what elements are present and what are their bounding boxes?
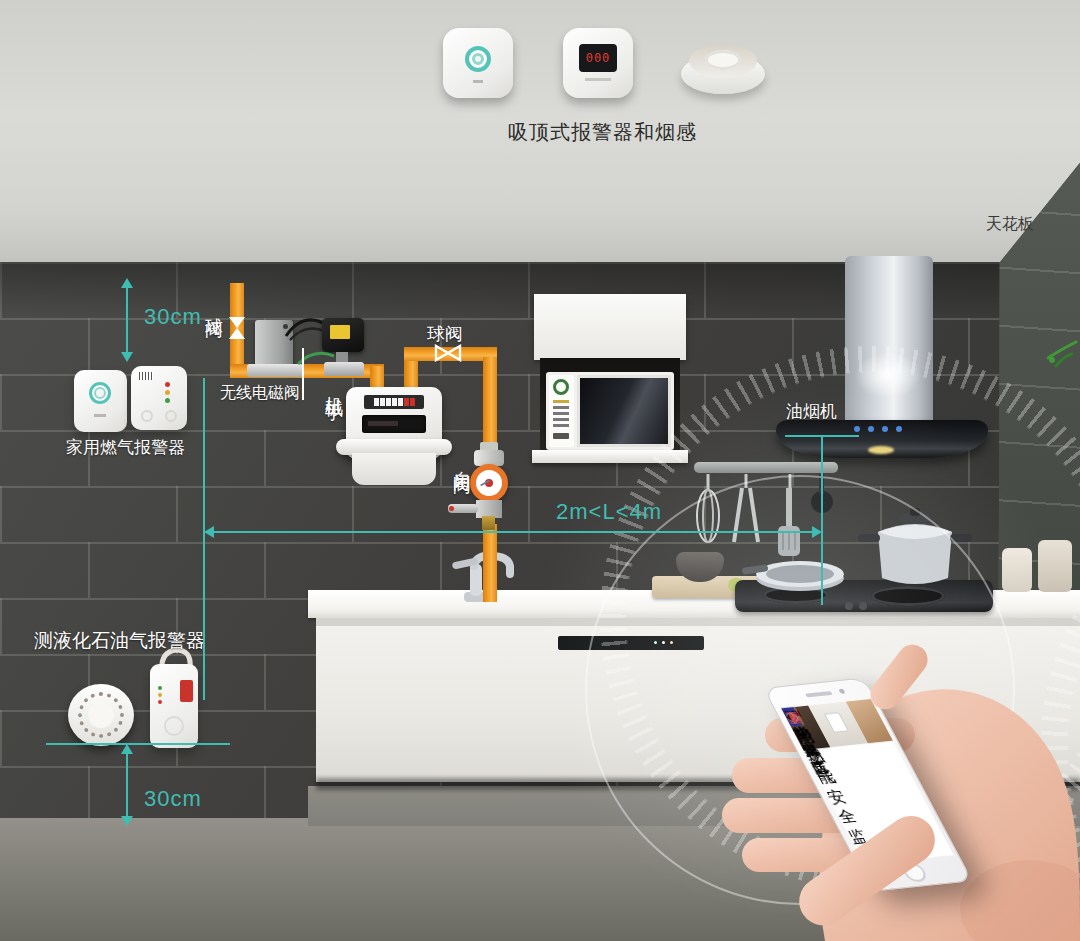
arrow-up-icon [121, 278, 133, 288]
ball-valve-symbol-riser [227, 316, 247, 340]
ball-valve-top-label: 球阀 [427, 322, 463, 346]
range-hood-label: 油烟机 [786, 400, 837, 423]
wireless-solenoid-valve [252, 320, 298, 378]
ball-valve-symbol-top [434, 344, 462, 362]
phone-home-button[interactable] [899, 862, 929, 883]
kitchen-gas-safety-diagram: 天花板 000 吸顶式报警器和烟感 [0, 0, 1080, 941]
manipulator-actuator [318, 318, 370, 380]
smoke-detector-ceiling [681, 36, 765, 98]
gas-pipe-to-stove [483, 524, 497, 602]
valve-gauge [470, 464, 508, 502]
measure-bottom-line [126, 752, 128, 818]
phone-camera [838, 689, 846, 694]
pointer-line [302, 348, 304, 400]
microwave-control-panel [549, 375, 574, 447]
measure-top-label: 30cm [144, 304, 202, 330]
measure-range-label: 2m<L<4m [556, 499, 662, 525]
teal-ring-icon [89, 382, 111, 404]
phone-speaker [805, 691, 833, 698]
hood-vertical-line [821, 435, 823, 605]
reference-vertical-line [203, 378, 205, 700]
measure-range-line [212, 531, 814, 533]
lpg-alarm-label: 测液化石油气报警器 [34, 628, 205, 654]
self-closing-valve-label: 自闭阀 [450, 456, 474, 465]
home-gas-alarm-b [131, 366, 187, 430]
upper-cabinet [534, 294, 686, 360]
arrow-down-icon [121, 352, 133, 362]
banner-device-image [824, 712, 849, 733]
plant-sprig [1042, 336, 1080, 376]
gas-meter [346, 383, 442, 485]
ball-valve-left-label: 球阀 [202, 303, 226, 309]
measure-bottom-label: 30cm [144, 786, 202, 812]
home-gas-alarm-a [74, 370, 127, 432]
ceiling-alarm-display: 000 [563, 28, 633, 98]
gas-pipe-drop [483, 357, 497, 451]
arrow-down-icon [121, 816, 133, 826]
arrow-left-icon [204, 526, 214, 538]
home-gas-alarm-label: 家用燃气报警器 [66, 436, 185, 459]
ceiling-alarm-teal-ring [443, 28, 513, 98]
lpg-smoke-detector [68, 678, 134, 748]
wireless-solenoid-label: 无线电磁阀 [220, 383, 300, 404]
manipulator-label: 机械手 [322, 382, 346, 391]
top-devices-caption: 吸顶式报警器和烟感 [508, 119, 697, 146]
lpg-alarm-unit [148, 646, 200, 748]
alarm-display-value: 000 [586, 51, 611, 65]
teal-ring-icon [465, 46, 491, 72]
measure-top-line [126, 286, 128, 354]
lpg-baseline [46, 743, 230, 745]
arrow-up-icon [121, 744, 133, 754]
ceiling-label: 天花板 [986, 214, 1034, 235]
